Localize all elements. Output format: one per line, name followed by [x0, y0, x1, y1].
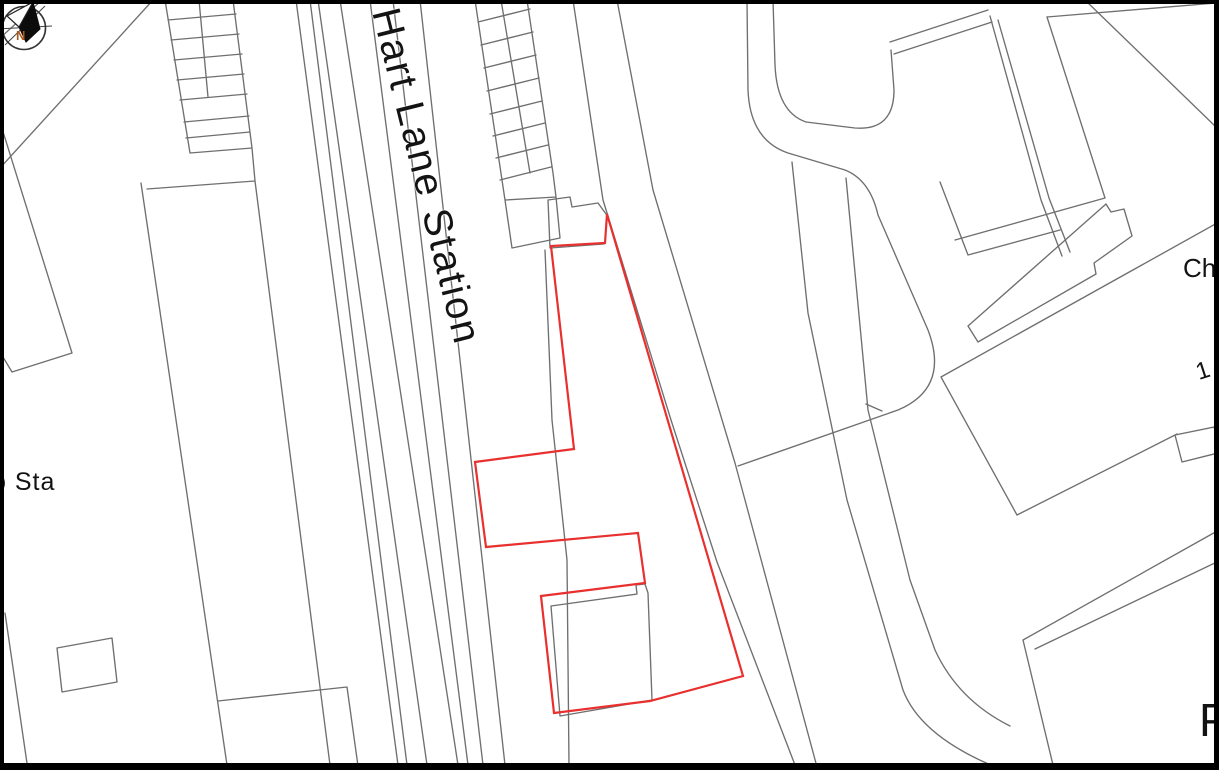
- station-building-grid: [475, 4, 560, 248]
- terrace-row: [165, 4, 252, 153]
- top-right-building-edge: [1085, 4, 1214, 127]
- east-road-edge-1: [792, 162, 993, 763]
- southeast-wall-lines: [1023, 530, 1214, 763]
- east-road-edge-2: [846, 178, 1010, 726]
- label-sub-station-partial: b Sta: [4, 470, 55, 495]
- loop-road-outer: [738, 4, 935, 466]
- label-cha-partial: Cha: [1183, 255, 1214, 281]
- bottomleft-line: [5, 613, 28, 763]
- east-parcel-line: [955, 17, 1105, 240]
- left-parcel-lines: [141, 148, 330, 763]
- map-linework-layer: [4, 4, 1214, 763]
- map-canvas: Hart Lane Station b Sta Cha 1 t P N: [4, 4, 1214, 763]
- east-building-corner: [940, 182, 1060, 255]
- map-world: Hart Lane Station b Sta Cha 1 t P N: [4, 4, 1214, 763]
- compass-rose-icon: [4, 4, 52, 50]
- compass-north-label: N: [16, 28, 25, 43]
- site-plan-drawing: [4, 4, 1214, 763]
- large-east-building: [941, 222, 1214, 515]
- loop-road-inner: [773, 4, 894, 128]
- label-p-partial: P: [1199, 697, 1214, 743]
- map-frame: Hart Lane Station b Sta Cha 1 t P N: [0, 0, 1219, 770]
- wedge-parcel: [4, 122, 72, 372]
- site-boundary-outline: [475, 214, 743, 713]
- bottomleft-outbuilding: [57, 638, 117, 692]
- site-building-echo: [551, 584, 652, 716]
- northeast-wall-pair: [890, 10, 992, 54]
- bottom-parcel-lines: [218, 687, 358, 763]
- road-east-edge: [617, 4, 817, 763]
- top-right-boundary: [1047, 4, 1214, 17]
- road-west-edge: [573, 4, 795, 763]
